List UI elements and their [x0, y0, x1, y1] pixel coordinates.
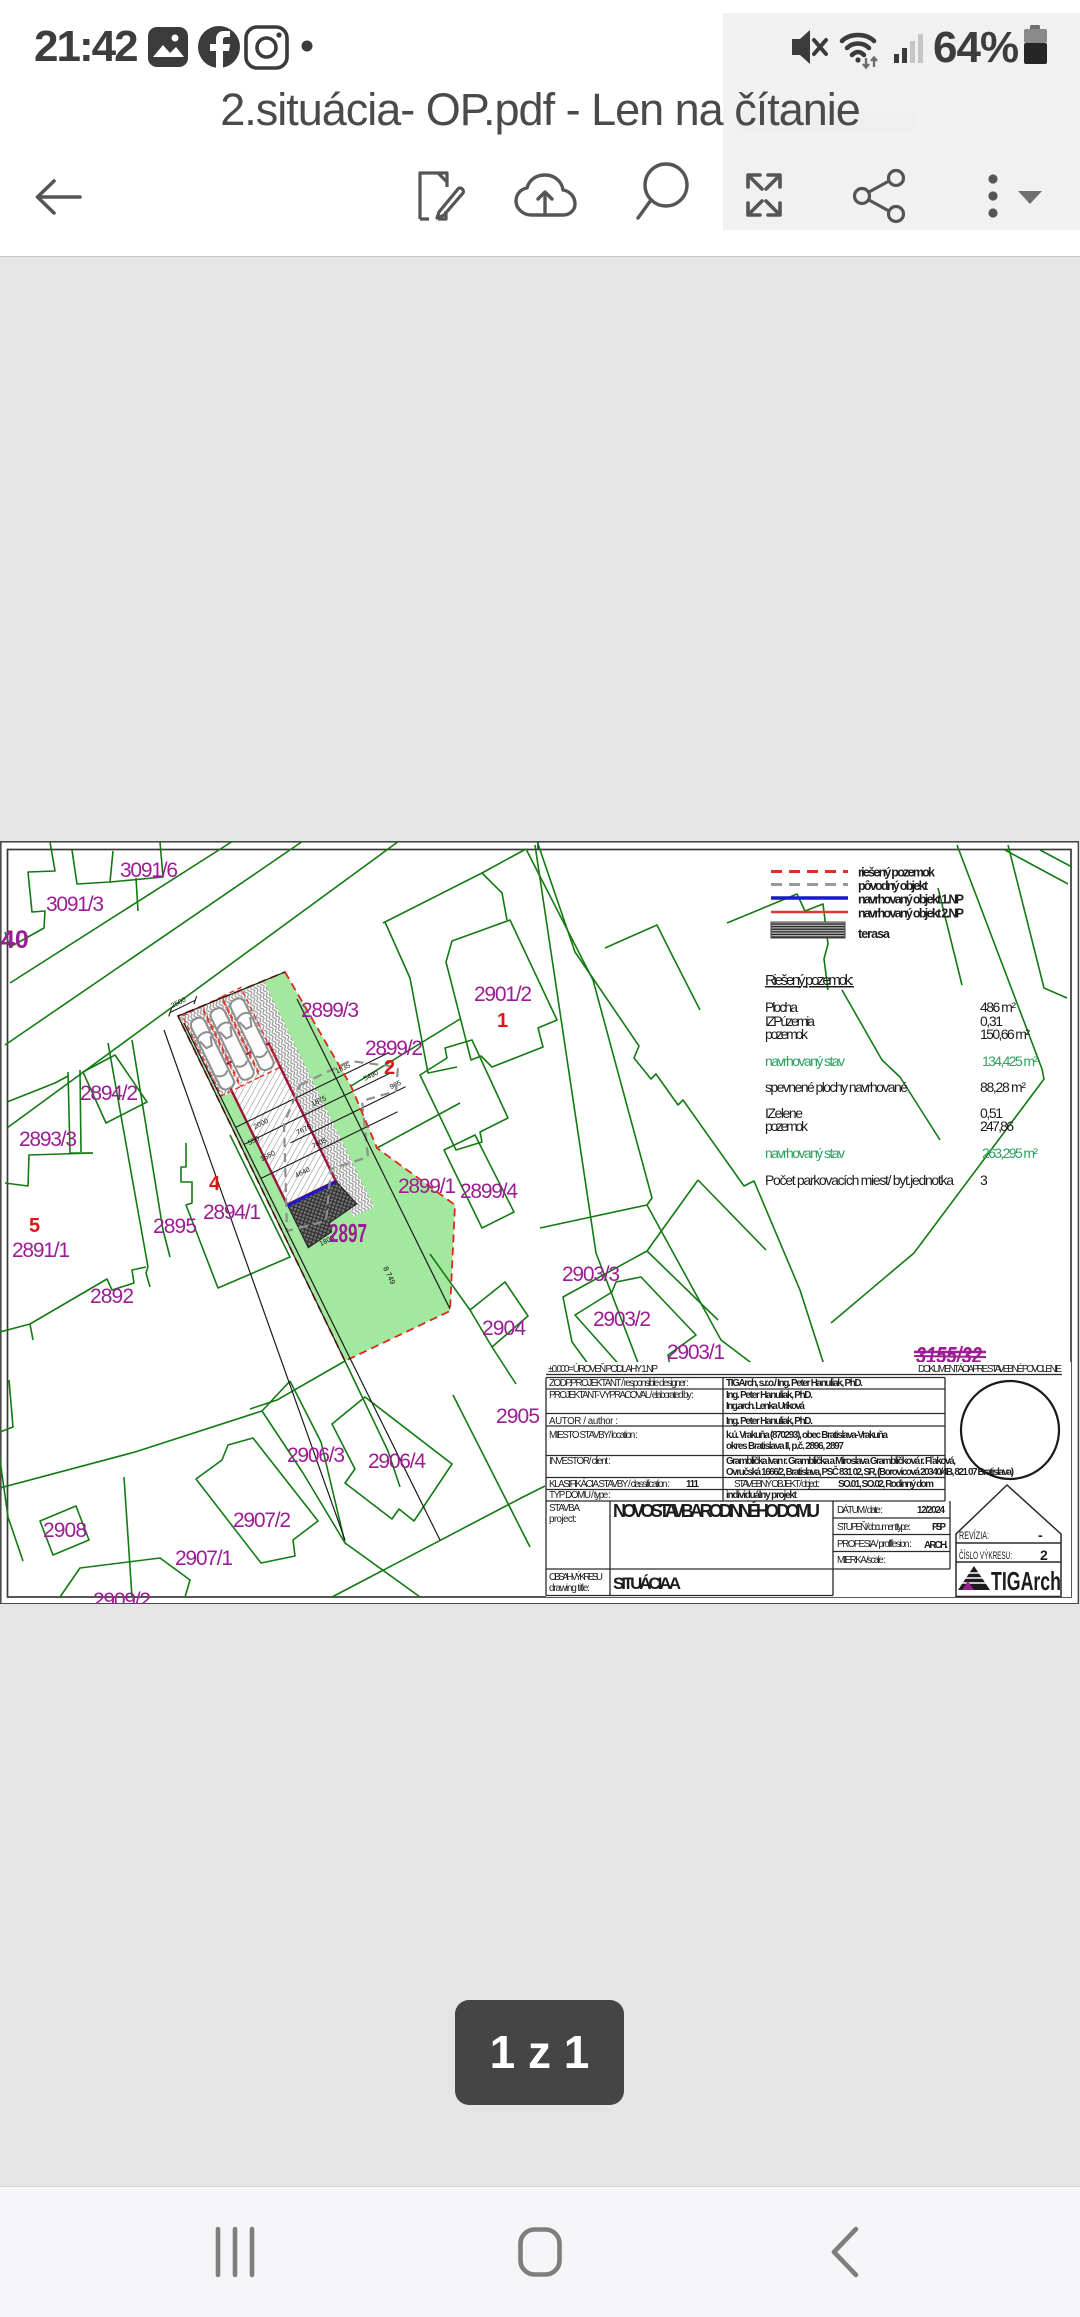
svg-text:40: 40 — [1, 926, 29, 954]
svg-text:SITUÁCIA A: SITUÁCIA A — [613, 1574, 681, 1593]
svg-text:ČÍSLO VÝKRESU:: ČÍSLO VÝKRESU: — [959, 1549, 1012, 1562]
svg-text:5: 5 — [29, 1215, 40, 1237]
svg-text:SO.01, SO.02, Rodinný dom: SO.01, SO.02, Rodinný dom — [838, 1479, 934, 1490]
svg-text:TIGArch, s.r.o./ Ing. Peter Ha: TIGArch, s.r.o./ Ing. Peter Hanuliak, Ph… — [726, 1378, 863, 1389]
svg-text:navrhovaný objekt 2.NP: navrhovaný objekt 2.NP — [858, 907, 964, 921]
svg-text:247,86: 247,86 — [980, 1118, 1014, 1134]
svg-text:2897: 2897 — [329, 1218, 367, 1248]
svg-text:project:: project: — [549, 1514, 577, 1525]
svg-text:2907/1: 2907/1 — [175, 1547, 233, 1570]
svg-text:STAVEBNÝ OBJEKT / object :: STAVEBNÝ OBJEKT / object : — [734, 1479, 820, 1490]
svg-text:2905: 2905 — [496, 1405, 540, 1428]
svg-text:TYP DOMU / type :: TYP DOMU / type : — [549, 1490, 611, 1501]
svg-text:Ovručská 1666/2, Bratislava, P: Ovručská 1666/2, Bratislava, PSČ 831 02,… — [726, 1466, 1014, 1478]
svg-text:2899/3: 2899/3 — [301, 999, 359, 1022]
svg-text:2894/2: 2894/2 — [80, 1082, 138, 1105]
svg-text:3: 3 — [980, 1172, 988, 1188]
svg-text:Ing. Peter Hanuliak, PhD.: Ing. Peter Hanuliak, PhD. — [726, 1390, 813, 1401]
svg-text:64%: 64% — [933, 23, 1018, 72]
svg-text:2899/4: 2899/4 — [460, 1180, 518, 1203]
svg-text:Ing. Peter Hanuliak, PhD.: Ing. Peter Hanuliak, PhD. — [726, 1416, 813, 1427]
svg-text:2906/4: 2906/4 — [368, 1450, 426, 1473]
svg-text:DOKUMENTÁCIA PRE STAVEBNÉ POVO: DOKUMENTÁCIA PRE STAVEBNÉ POVOLENIE — [918, 1364, 1062, 1375]
svg-text:terasa: terasa — [858, 927, 891, 941]
svg-text:STUPEŇ / document type :: STUPEŇ / document type : — [837, 1522, 911, 1533]
svg-text:k.ú. Vrakuňa (870293), obec Br: k.ú. Vrakuňa (870293), obec Bratislava-V… — [726, 1430, 889, 1441]
svg-text:2893/3: 2893/3 — [19, 1128, 77, 1151]
svg-text:NOVOSTAVBA RODINNÉHO DOMU: NOVOSTAVBA RODINNÉHO DOMU — [613, 1500, 820, 1521]
svg-text:MIESTO STAVBY/ location :: MIESTO STAVBY/ location : — [549, 1430, 638, 1441]
svg-text:ARCH.: ARCH. — [924, 1540, 948, 1551]
svg-text:2: 2 — [384, 1057, 395, 1079]
svg-text:2903/3: 2903/3 — [562, 1263, 620, 1286]
svg-text:-: - — [1038, 1527, 1043, 1543]
svg-text:spevnené plochy navrhované: spevnené plochy navrhované — [765, 1079, 908, 1095]
svg-text:TIGArch: TIGArch — [991, 1566, 1061, 1596]
svg-text:2: 2 — [1040, 1547, 1048, 1563]
svg-text:PROJEKTANT- VYPRACOVAL / elabo: PROJEKTANT- VYPRACOVAL / elaborated by : — [549, 1390, 694, 1401]
svg-text:pozemok: pozemok — [765, 1026, 809, 1042]
svg-text:3091/3: 3091/3 — [46, 893, 104, 916]
svg-text:2904: 2904 — [482, 1317, 526, 1340]
svg-text:drawing title:: drawing title: — [549, 1583, 590, 1594]
svg-text:88,28 m²: 88,28 m² — [980, 1079, 1026, 1095]
svg-text:111: 111 — [686, 1479, 700, 1490]
svg-text:2899/1: 2899/1 — [398, 1175, 456, 1198]
svg-text:12/2024: 12/2024 — [917, 1505, 946, 1516]
svg-text:±0.000= ÚROVEŇ PODLAHY 1.NP: ±0.000= ÚROVEŇ PODLAHY 1.NP — [548, 1364, 658, 1375]
svg-text:2901/2: 2901/2 — [474, 983, 532, 1006]
svg-text:INVESTOR/ client :: INVESTOR/ client : — [549, 1456, 611, 1467]
svg-text:2891/1: 2891/1 — [12, 1239, 70, 1262]
svg-text:4: 4 — [209, 1173, 221, 1195]
svg-text:2895: 2895 — [153, 1215, 197, 1238]
svg-text:navrhovaný stav: navrhovaný stav — [765, 1053, 845, 1069]
svg-text:2894/1: 2894/1 — [203, 1201, 261, 1224]
svg-text:Riešený pozemok:: Riešený pozemok: — [765, 972, 854, 989]
svg-text:1: 1 — [497, 1010, 508, 1032]
svg-text:150,66 m²: 150,66 m² — [980, 1026, 1030, 1042]
svg-text:134,425 m²: 134,425 m² — [982, 1053, 1038, 1069]
svg-text:Ing.arch. Lenka Uríková: Ing.arch. Lenka Uríková — [726, 1401, 806, 1412]
svg-text:PSP: PSP — [932, 1522, 946, 1533]
svg-text:2903/1: 2903/1 — [667, 1341, 725, 1364]
svg-text:2892: 2892 — [90, 1285, 134, 1308]
svg-text:STAVBA: STAVBA — [549, 1503, 580, 1514]
svg-text:AUTOR / author :: AUTOR / author : — [549, 1416, 618, 1427]
svg-text:navrhovaný stav: navrhovaný stav — [765, 1145, 845, 1161]
svg-text:2903/2: 2903/2 — [593, 1308, 651, 1331]
svg-text:2909/2: 2909/2 — [93, 1589, 151, 1604]
svg-text:individuálny projekt: individuálny projekt — [726, 1490, 798, 1501]
svg-text:2908: 2908 — [43, 1519, 87, 1542]
svg-text:okres Bratislava II, p.č. 2896: okres Bratislava II, p.č. 2896, 2897 — [726, 1441, 845, 1452]
svg-text:2907/2: 2907/2 — [233, 1509, 291, 1532]
svg-text:263,295 m²: 263,295 m² — [982, 1145, 1038, 1161]
svg-text:KLASIFIKÁCIA STAVBY / classifi: KLASIFIKÁCIA STAVBY / classification : — [549, 1479, 670, 1490]
svg-text:PROFESIA / profffesion :: PROFESIA / profffesion : — [837, 1539, 912, 1550]
svg-text:Počet parkovacích miest/ byt.j: Počet parkovacích miest/ byt.jednotka — [765, 1172, 954, 1188]
svg-text:3091/6: 3091/6 — [120, 859, 178, 882]
svg-text:riešený pozemok: riešený pozemok — [858, 866, 935, 880]
svg-text:pôvodný objekt: pôvodný objekt — [858, 879, 929, 893]
svg-text:pozemok: pozemok — [765, 1118, 809, 1134]
svg-text:REVÍZIA:: REVÍZIA: — [959, 1529, 989, 1542]
svg-text:MIERKA /scale :: MIERKA /scale : — [837, 1555, 886, 1566]
svg-text:Gramblička Ivan r. Gramblička: Gramblička Ivan r. Gramblička a Miroslav… — [726, 1456, 956, 1467]
svg-text:ZODP.PROJEKTANT / responsible: ZODP.PROJEKTANT / responsible designer : — [549, 1378, 689, 1389]
svg-text:DÁTUM / date :: DÁTUM / date : — [837, 1505, 883, 1516]
svg-text:2906/3: 2906/3 — [287, 1444, 345, 1467]
svg-text:navrhovaný objekt 1.NP: navrhovaný objekt 1.NP — [858, 893, 964, 907]
svg-text:OBSAH VÝKRESU: OBSAH VÝKRESU — [549, 1572, 603, 1583]
